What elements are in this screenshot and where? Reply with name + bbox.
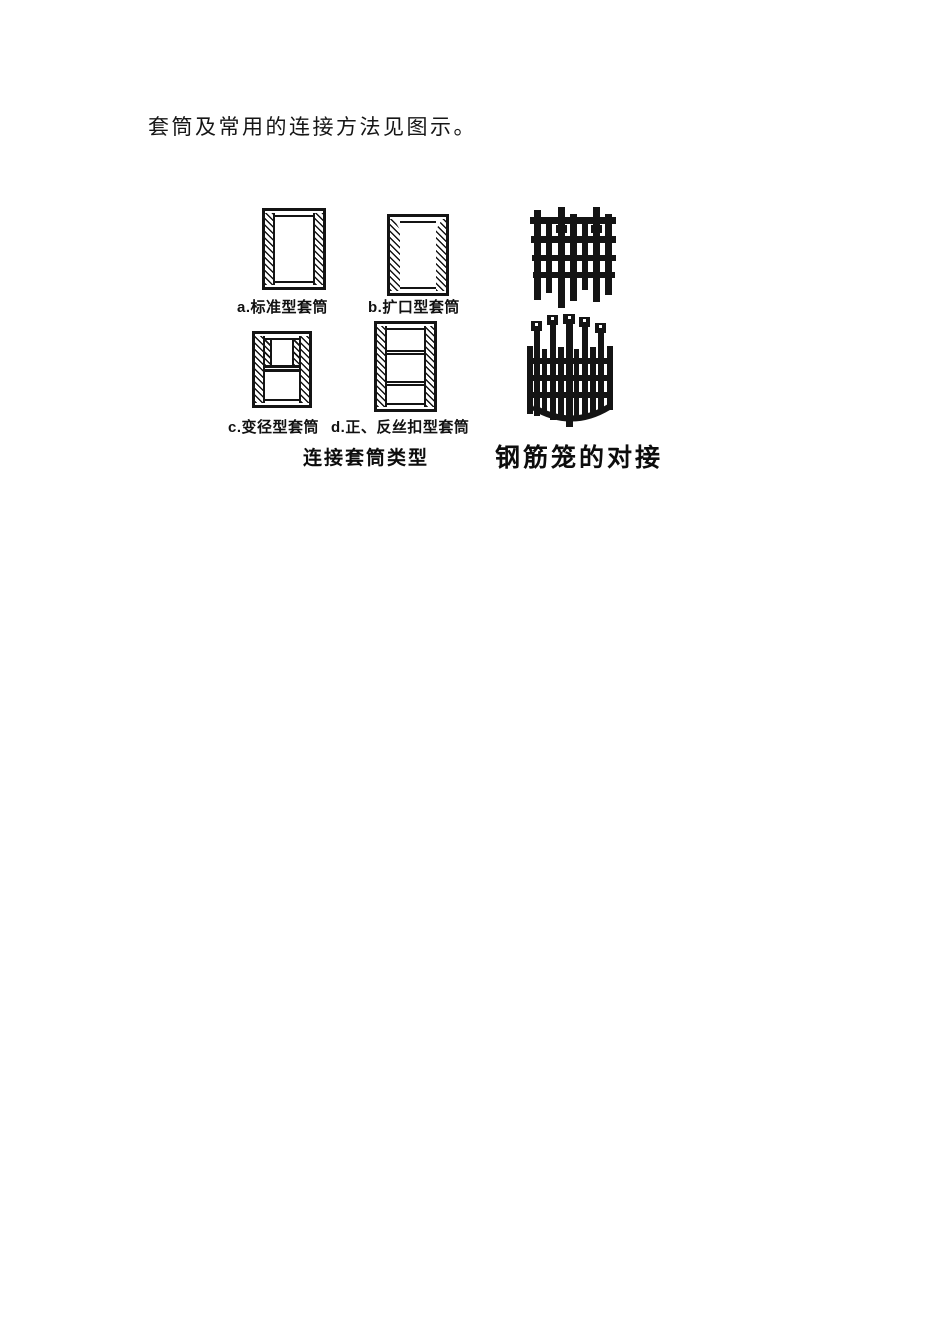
lower-divider — [385, 381, 426, 386]
hatched-wall-left — [390, 219, 400, 291]
rebar-cage-lower-illustration — [526, 314, 616, 434]
hatched-wall-right — [313, 213, 323, 285]
sleeve-diagram-flared — [387, 214, 449, 296]
upper-divider — [385, 350, 426, 355]
sleeve-diagram-standard — [262, 208, 326, 290]
hatched-wall-right — [436, 219, 446, 291]
sleeve-label-d: d.正、反丝扣型套筒 — [331, 416, 469, 437]
hatched-wall-right — [424, 326, 434, 407]
sleeve-diagram-reducing — [252, 331, 312, 408]
sleeve-top-lip — [275, 211, 313, 217]
rebar-cage-upper-illustration — [528, 205, 620, 312]
sleeve-bottom-lip — [400, 287, 436, 293]
sleeve-bottom-lip — [387, 403, 424, 409]
sleeve-top-lip — [387, 324, 424, 330]
document-page: 套筒及常用的连接方法见图示。 a.标准型套筒 b.扩口型套筒 c.变径型套筒 d… — [0, 0, 950, 1344]
sleeve-top-lip — [400, 217, 436, 223]
cage-joint-caption: 钢筋笼的对接 — [495, 438, 663, 474]
sleeve-bottom-lip — [275, 281, 313, 287]
reduced-bore-step-right — [292, 340, 299, 366]
sleeve-label-a: a.标准型套筒 — [237, 296, 328, 317]
sleeve-diagram-thread — [374, 321, 437, 412]
sleeve-label-b: b.扩口型套筒 — [368, 296, 460, 317]
reduced-bore-step-left — [265, 340, 272, 366]
hatched-wall-left — [377, 326, 387, 407]
sleeve-bottom-lip — [265, 399, 299, 405]
mid-divider — [263, 365, 301, 372]
intro-paragraph: 套筒及常用的连接方法见图示。 — [148, 111, 477, 141]
sleeve-types-caption: 连接套筒类型 — [303, 443, 429, 470]
hatched-wall-left — [265, 213, 275, 285]
sleeve-label-c: c.变径型套筒 — [228, 416, 319, 437]
